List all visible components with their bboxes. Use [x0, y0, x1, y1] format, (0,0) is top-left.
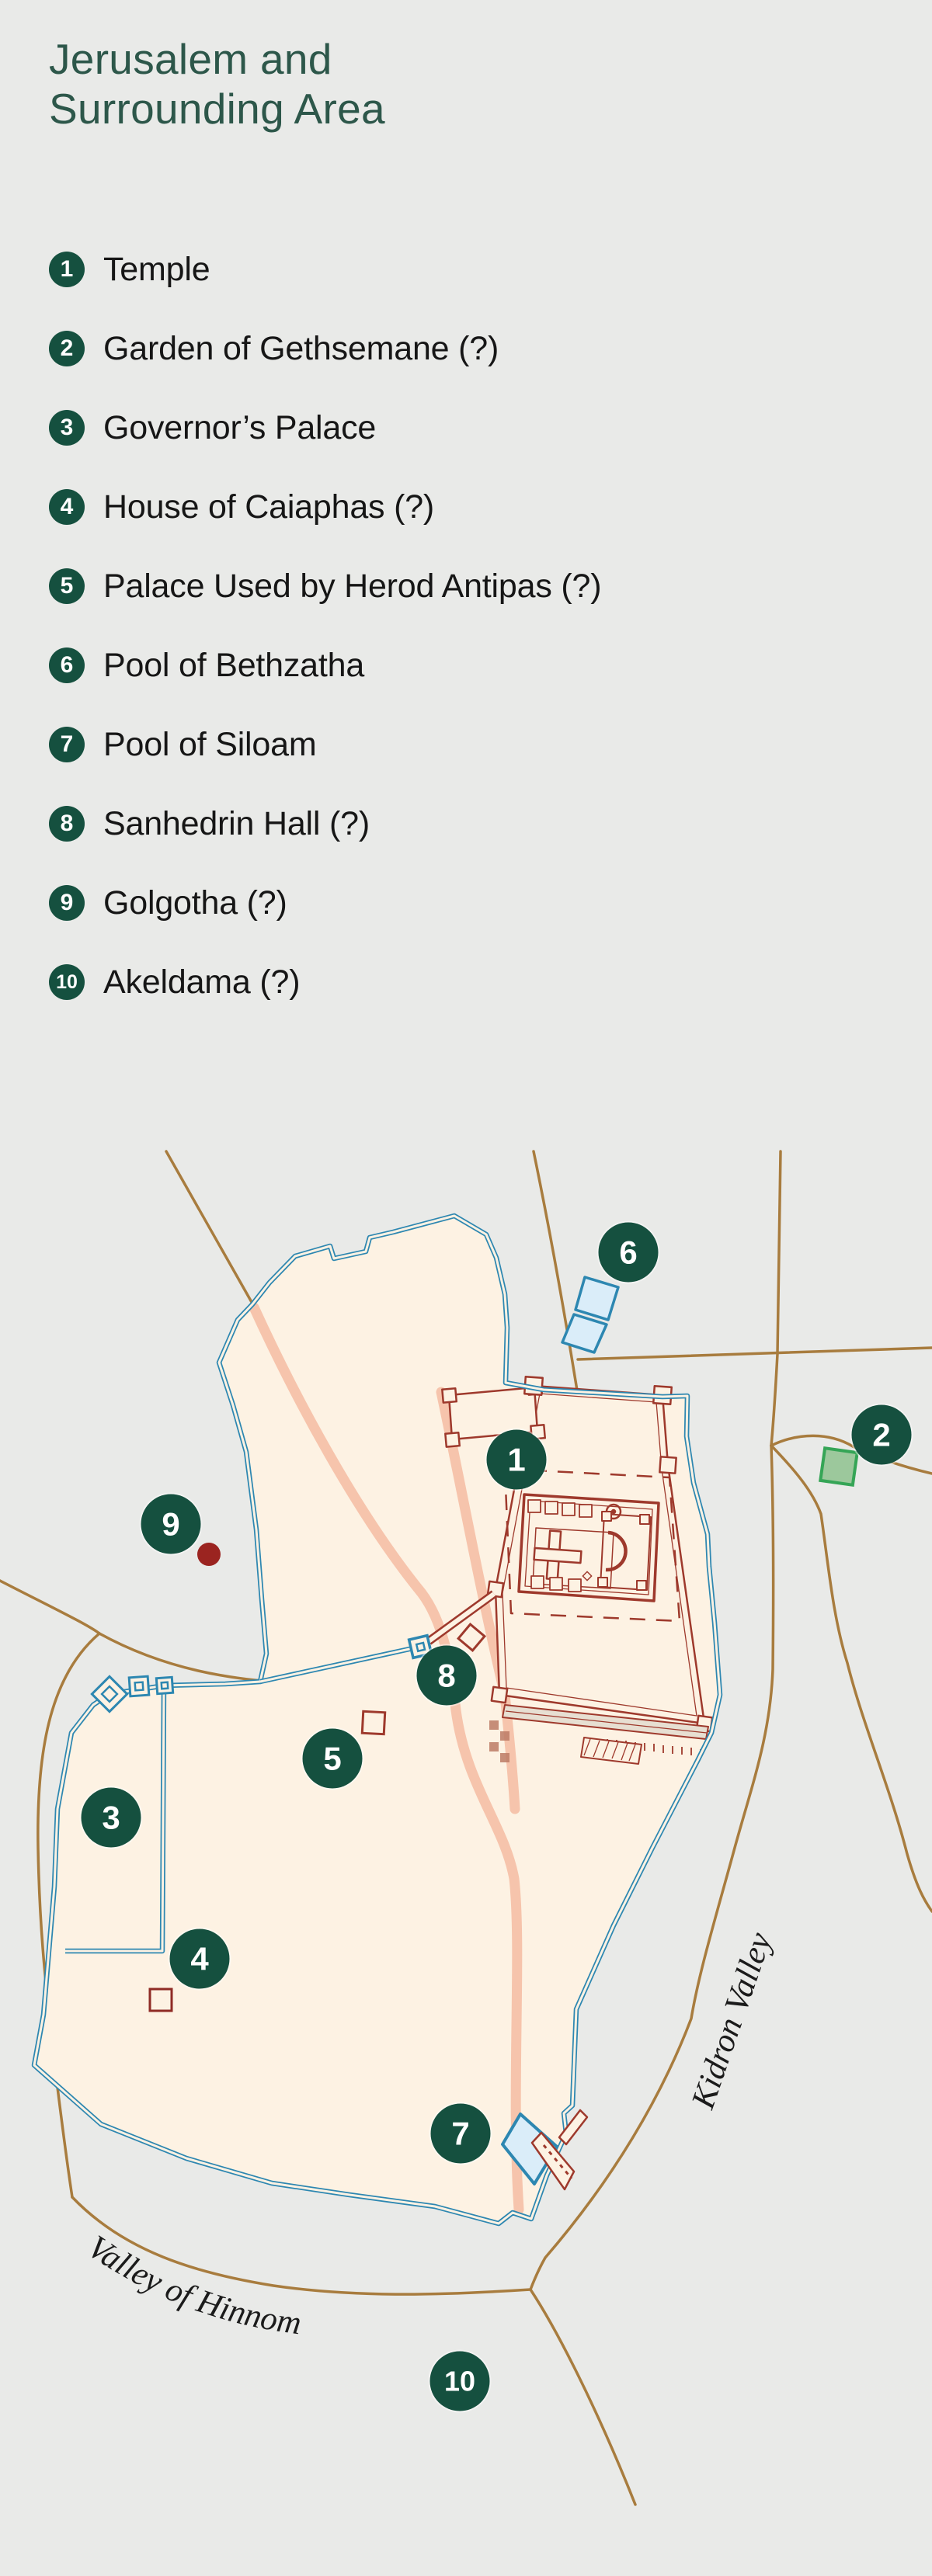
golgotha-dot [197, 1543, 221, 1566]
city-map: Kidron Valley Valley of Hinnom [0, 0, 932, 2576]
wall-tower-2 [156, 1677, 172, 1693]
antonia-fortress [449, 1387, 537, 1439]
road-along-second-wall [99, 1633, 281, 1682]
road-east-west-upper [578, 1348, 932, 1359]
sanhedrin-gate [409, 1636, 432, 1658]
sanctuary-cross-horizontal [534, 1548, 582, 1563]
road-kidron-south [530, 2290, 635, 2505]
herod-antipas-palace-building [362, 1711, 384, 1734]
road-northwest [166, 1151, 252, 1304]
road-east [771, 1151, 781, 1446]
road-north [534, 1151, 578, 1395]
kidron-valley-label: Kidron Valley [684, 1927, 779, 2113]
gethsemane-garden-square [820, 1448, 857, 1484]
road-west-upper [0, 1581, 99, 1633]
road-southeast-branch [771, 1446, 932, 1911]
pool-of-bethzatha-north [576, 1277, 618, 1320]
wall-tower-1 [129, 1676, 149, 1696]
house-of-caiaphas-building [150, 1989, 172, 2011]
jerusalem-map-infographic: Jerusalem and Surrounding Area 1 Temple … [0, 0, 932, 2576]
